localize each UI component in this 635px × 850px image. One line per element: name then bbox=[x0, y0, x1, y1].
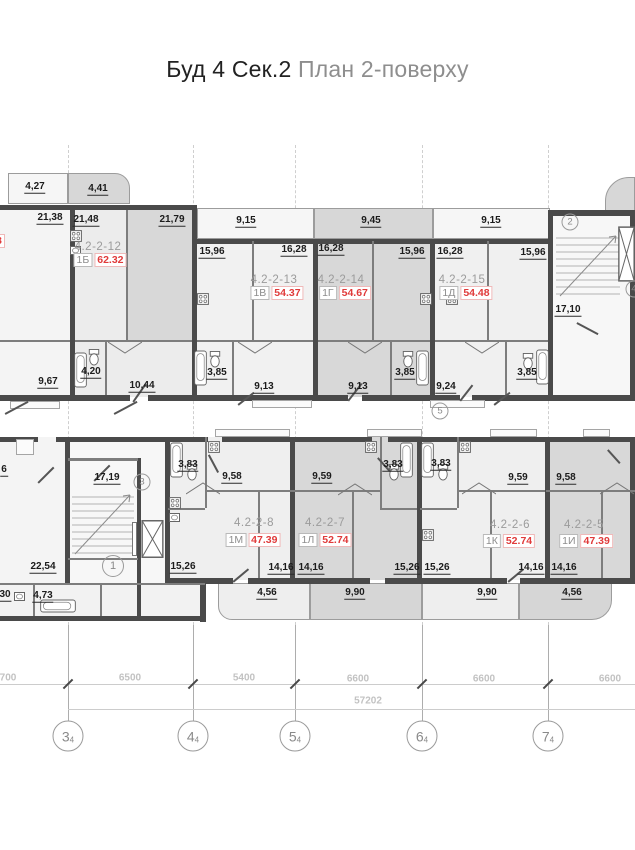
dimension-line bbox=[0, 684, 635, 685]
apartment-code: 4.2-2-14 bbox=[318, 274, 365, 286]
bathtub-icon bbox=[194, 350, 207, 386]
apartment-area: 54.37 bbox=[271, 286, 303, 300]
apartment-code: 4.2-2-13 bbox=[251, 274, 298, 286]
grid-bubble: 34 bbox=[53, 721, 84, 752]
dim-label: 21,38 bbox=[36, 212, 63, 225]
wall bbox=[0, 616, 206, 621]
window-sill bbox=[367, 429, 422, 437]
dim-label: 22,54 bbox=[29, 561, 56, 574]
grid-bubble-number: 3 bbox=[62, 728, 70, 744]
dim-label: 4,73 bbox=[32, 590, 53, 603]
grid-dim-label: 700 bbox=[0, 673, 16, 684]
apartment-type: 1Д bbox=[439, 286, 458, 300]
grid-total-label: 57202 bbox=[354, 696, 382, 707]
partition bbox=[0, 340, 70, 342]
title-plan: План 2-поверху bbox=[291, 56, 468, 82]
grid-bubble-sub: 4 bbox=[424, 735, 428, 744]
bathtub-icon bbox=[536, 349, 549, 385]
balcony bbox=[605, 177, 635, 212]
wall bbox=[248, 578, 370, 584]
dim-label: 14,16 bbox=[550, 562, 577, 575]
partition bbox=[0, 583, 205, 585]
partition bbox=[420, 508, 457, 510]
wall bbox=[222, 437, 372, 442]
dim-label: 9,45 bbox=[360, 215, 381, 228]
partition bbox=[100, 583, 102, 616]
dim-label: 16,28 bbox=[280, 244, 307, 257]
apartment-area: 47.39 bbox=[581, 534, 613, 548]
wall bbox=[430, 239, 435, 401]
dim-label: 3,85 bbox=[206, 367, 227, 380]
door-chevron-icon bbox=[108, 341, 142, 354]
wall bbox=[56, 437, 208, 442]
dim-label: 4,41 bbox=[87, 183, 108, 196]
dim-label: 16,28 bbox=[317, 243, 344, 256]
wall bbox=[472, 395, 635, 401]
grid-bubble: 74 bbox=[533, 721, 564, 752]
wall bbox=[520, 578, 635, 584]
window-sill bbox=[215, 429, 290, 437]
elevator-counterweight bbox=[132, 522, 137, 556]
dim-label: 17,19 bbox=[93, 472, 120, 485]
dim-label: 4,27 bbox=[24, 181, 45, 194]
stove-icon bbox=[197, 293, 209, 305]
apartment-info: 1Д 54.48 bbox=[439, 286, 492, 300]
grid-bubble-number: 4 bbox=[187, 728, 195, 744]
partition bbox=[352, 490, 354, 578]
dim-label: 3,85 bbox=[394, 367, 415, 380]
bathtub-icon bbox=[416, 350, 429, 386]
apartment-type: 1М bbox=[226, 533, 247, 547]
dim-label: 14,16 bbox=[267, 562, 294, 575]
room-fill bbox=[128, 210, 194, 340]
stove-icon bbox=[420, 293, 432, 305]
staircase-icon bbox=[72, 492, 134, 556]
dim-label: 9,15 bbox=[480, 215, 501, 228]
wall bbox=[630, 437, 635, 584]
partition bbox=[232, 340, 234, 395]
toilet-icon bbox=[402, 351, 414, 368]
door-chevron-icon bbox=[338, 483, 372, 496]
dim-label: 15,96 bbox=[198, 246, 225, 259]
partition bbox=[68, 458, 138, 461]
floor-plan-page: Буд 4 Сек.2 План 2-поверху НЕРУХОМІСТЬ Н… bbox=[0, 0, 635, 850]
door-swing bbox=[114, 401, 138, 415]
dim-label: 9,90 bbox=[344, 587, 365, 600]
stove-icon bbox=[208, 441, 220, 453]
apartment-code: 4.2-2-6 bbox=[490, 519, 530, 531]
stove-icon bbox=[422, 529, 434, 541]
dim-label: 9,13 bbox=[253, 381, 274, 394]
dim-label: 15,26 bbox=[423, 562, 450, 575]
dim-label: 21,48 bbox=[72, 214, 99, 227]
page-title: Буд 4 Сек.2 План 2-поверху bbox=[0, 56, 635, 83]
door-chevron-icon bbox=[348, 341, 382, 354]
grid-bubble-sub: 4 bbox=[297, 735, 301, 744]
partition bbox=[505, 340, 507, 395]
apartment-type: 1Г bbox=[319, 286, 337, 300]
dim-label: 9,67 bbox=[37, 376, 58, 389]
grid-bubble: 64 bbox=[407, 721, 438, 752]
dim-label: 9,58 bbox=[555, 472, 576, 485]
door-chevron-icon bbox=[465, 341, 499, 354]
dim-label: 9,15 bbox=[235, 215, 256, 228]
partition bbox=[126, 210, 128, 340]
grid-bubble-sub: 4 bbox=[195, 735, 199, 744]
apartment-code: 4.2-2-8 bbox=[234, 517, 274, 529]
apartment-area: 47.39 bbox=[248, 533, 280, 547]
title-building: Буд 4 Сек.2 bbox=[166, 56, 291, 82]
dim-label: 3,83 bbox=[382, 459, 403, 472]
grid-bubble: 44 bbox=[178, 721, 209, 752]
axis-stem bbox=[422, 625, 423, 721]
apartment-info: 1В 54.37 bbox=[250, 286, 303, 300]
dim-label: 3,83 bbox=[430, 458, 451, 471]
window-sill bbox=[490, 429, 537, 437]
apartment-area: 54.48 bbox=[460, 286, 492, 300]
dim-label: 16,28 bbox=[436, 246, 463, 259]
dim-label: 30 bbox=[0, 589, 12, 602]
toilet-icon bbox=[88, 349, 100, 366]
apartment-code: 4.2-2-15 bbox=[439, 274, 486, 286]
dim-label: 15,26 bbox=[393, 562, 420, 575]
apartment-info: 1Л 52.74 bbox=[298, 533, 351, 547]
balcony bbox=[422, 583, 519, 620]
dim-label: 10,44 bbox=[128, 380, 155, 393]
stove-icon bbox=[365, 441, 377, 453]
apartment-info: 1И 47.39 bbox=[559, 534, 613, 548]
dim-label: 15,96 bbox=[398, 246, 425, 259]
partition bbox=[380, 437, 382, 508]
grid-dim-label: 6600 bbox=[473, 674, 495, 685]
apartment-info: 1Б 62.32 bbox=[73, 253, 126, 267]
dim-label: 9,13 bbox=[347, 381, 368, 394]
axis-stem bbox=[548, 625, 549, 721]
sink-icon bbox=[14, 592, 25, 601]
apartment-area: 62.32 bbox=[94, 253, 126, 267]
grid-dim-label: 6500 bbox=[119, 673, 141, 684]
dim-label: 4,56 bbox=[561, 587, 582, 600]
dim-label: 14,16 bbox=[297, 562, 324, 575]
wall bbox=[545, 437, 550, 584]
apartment-type: 1Л bbox=[298, 533, 317, 547]
apartment-5-fill bbox=[546, 437, 635, 580]
dim-label: 3,83 bbox=[177, 459, 198, 472]
apartment-area: 54.67 bbox=[339, 286, 371, 300]
apartment-area: 52.74 bbox=[503, 534, 535, 548]
apartment-type: 1В bbox=[250, 286, 269, 300]
room-fill bbox=[0, 207, 72, 397]
grid-dim-label: 6600 bbox=[599, 674, 621, 685]
partition bbox=[205, 437, 207, 508]
axis-stem bbox=[68, 625, 69, 721]
grid-dim-label: 5400 bbox=[233, 673, 255, 684]
apartment-info: 1Г 54.67 bbox=[319, 286, 371, 300]
grid-bubble-sub: 4 bbox=[70, 735, 74, 744]
apartment-info: 1К 52.74 bbox=[483, 534, 535, 548]
partition bbox=[372, 241, 374, 340]
dim-label: 15,96 bbox=[519, 247, 546, 260]
dim-label: 9,59 bbox=[507, 472, 528, 485]
apartment-info: 1М 47.39 bbox=[226, 533, 281, 547]
dim-label: 9,58 bbox=[221, 471, 242, 484]
elevator-icon bbox=[618, 226, 635, 282]
ref-circle: 4 bbox=[626, 281, 635, 298]
dim-label: 4,20 bbox=[80, 366, 101, 379]
wall bbox=[313, 239, 318, 401]
apartment-code: 4.2-2-5 bbox=[564, 519, 604, 531]
grid-bubble-number: 6 bbox=[416, 728, 424, 744]
dim-label: 21,79 bbox=[158, 214, 185, 227]
ref-circle: 3 bbox=[134, 474, 151, 491]
apartment-code: 4.2-2-12 bbox=[75, 241, 122, 253]
sink-icon bbox=[169, 513, 180, 522]
window-bay bbox=[16, 439, 34, 455]
window-sill bbox=[583, 429, 610, 437]
partition bbox=[380, 508, 417, 510]
door-chevron-icon bbox=[462, 482, 496, 495]
door-chevron-icon bbox=[186, 482, 220, 495]
dim-label: 4,56 bbox=[256, 587, 277, 600]
dim-label: 9,59 bbox=[311, 471, 332, 484]
dim-label: 17,10 bbox=[554, 304, 581, 317]
ref-circle: 1 bbox=[102, 555, 124, 577]
balcony bbox=[310, 583, 422, 620]
door-chevron-icon bbox=[238, 341, 272, 354]
staircase-icon bbox=[556, 232, 620, 298]
dimension-line bbox=[68, 709, 635, 710]
grid-bubble-sub: 4 bbox=[550, 735, 554, 744]
cut-area-fragment: 8 bbox=[0, 234, 5, 248]
stove-icon bbox=[169, 497, 181, 509]
dim-label: 3,85 bbox=[516, 367, 537, 380]
apartment-area: 52.74 bbox=[319, 533, 351, 547]
apartment-type: 1И bbox=[559, 534, 578, 548]
dim-label: 15,26 bbox=[169, 561, 196, 574]
grid-bubble-number: 5 bbox=[289, 728, 297, 744]
window-sill bbox=[252, 400, 312, 408]
ref-circle: 2 bbox=[562, 214, 579, 231]
dim-label: 9,24 bbox=[435, 381, 456, 394]
wall bbox=[0, 205, 195, 210]
dim-label: 6 bbox=[0, 464, 8, 477]
axis-stem bbox=[295, 625, 296, 721]
apartment-type: 1Б bbox=[73, 253, 92, 267]
grid-bubble-number: 7 bbox=[542, 728, 550, 744]
partition bbox=[390, 340, 392, 395]
apartment-type: 1К bbox=[483, 534, 501, 548]
ref-circle: 5 bbox=[432, 403, 449, 420]
elevator-icon bbox=[141, 520, 164, 558]
door-chevron-icon bbox=[600, 482, 634, 495]
stove-icon bbox=[459, 441, 471, 453]
apartment-code: 4.2-2-7 bbox=[305, 517, 345, 529]
toilet-icon bbox=[209, 351, 221, 368]
partition bbox=[105, 340, 107, 395]
grid-bubble: 54 bbox=[280, 721, 311, 752]
grid-dim-label: 6600 bbox=[347, 674, 369, 685]
dim-label: 9,90 bbox=[476, 587, 497, 600]
wall bbox=[385, 578, 507, 584]
axis-stem bbox=[193, 625, 194, 721]
dim-label: 14,16 bbox=[517, 562, 544, 575]
